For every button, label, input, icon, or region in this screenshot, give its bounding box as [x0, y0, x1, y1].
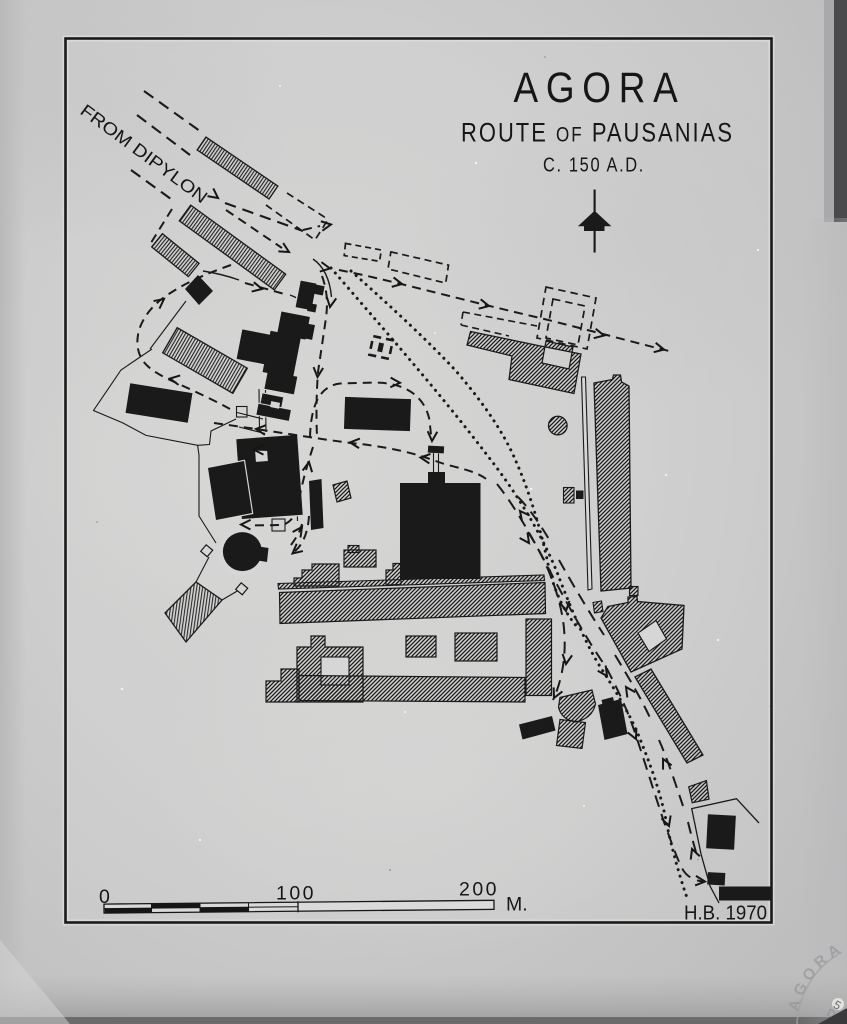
svg-text:ROUTE OF PAUSANIAS: ROUTE OF PAUSANIAS: [461, 118, 734, 148]
svg-text:H.B. 1970: H.B. 1970: [684, 903, 767, 925]
svg-text:M.: M.: [506, 894, 528, 916]
svg-text:200: 200: [459, 879, 499, 901]
svg-text:C. 150 A.D.: C. 150 A.D.: [543, 155, 645, 177]
svg-text:100: 100: [276, 883, 316, 905]
svg-text:AGORA: AGORA: [514, 64, 686, 112]
